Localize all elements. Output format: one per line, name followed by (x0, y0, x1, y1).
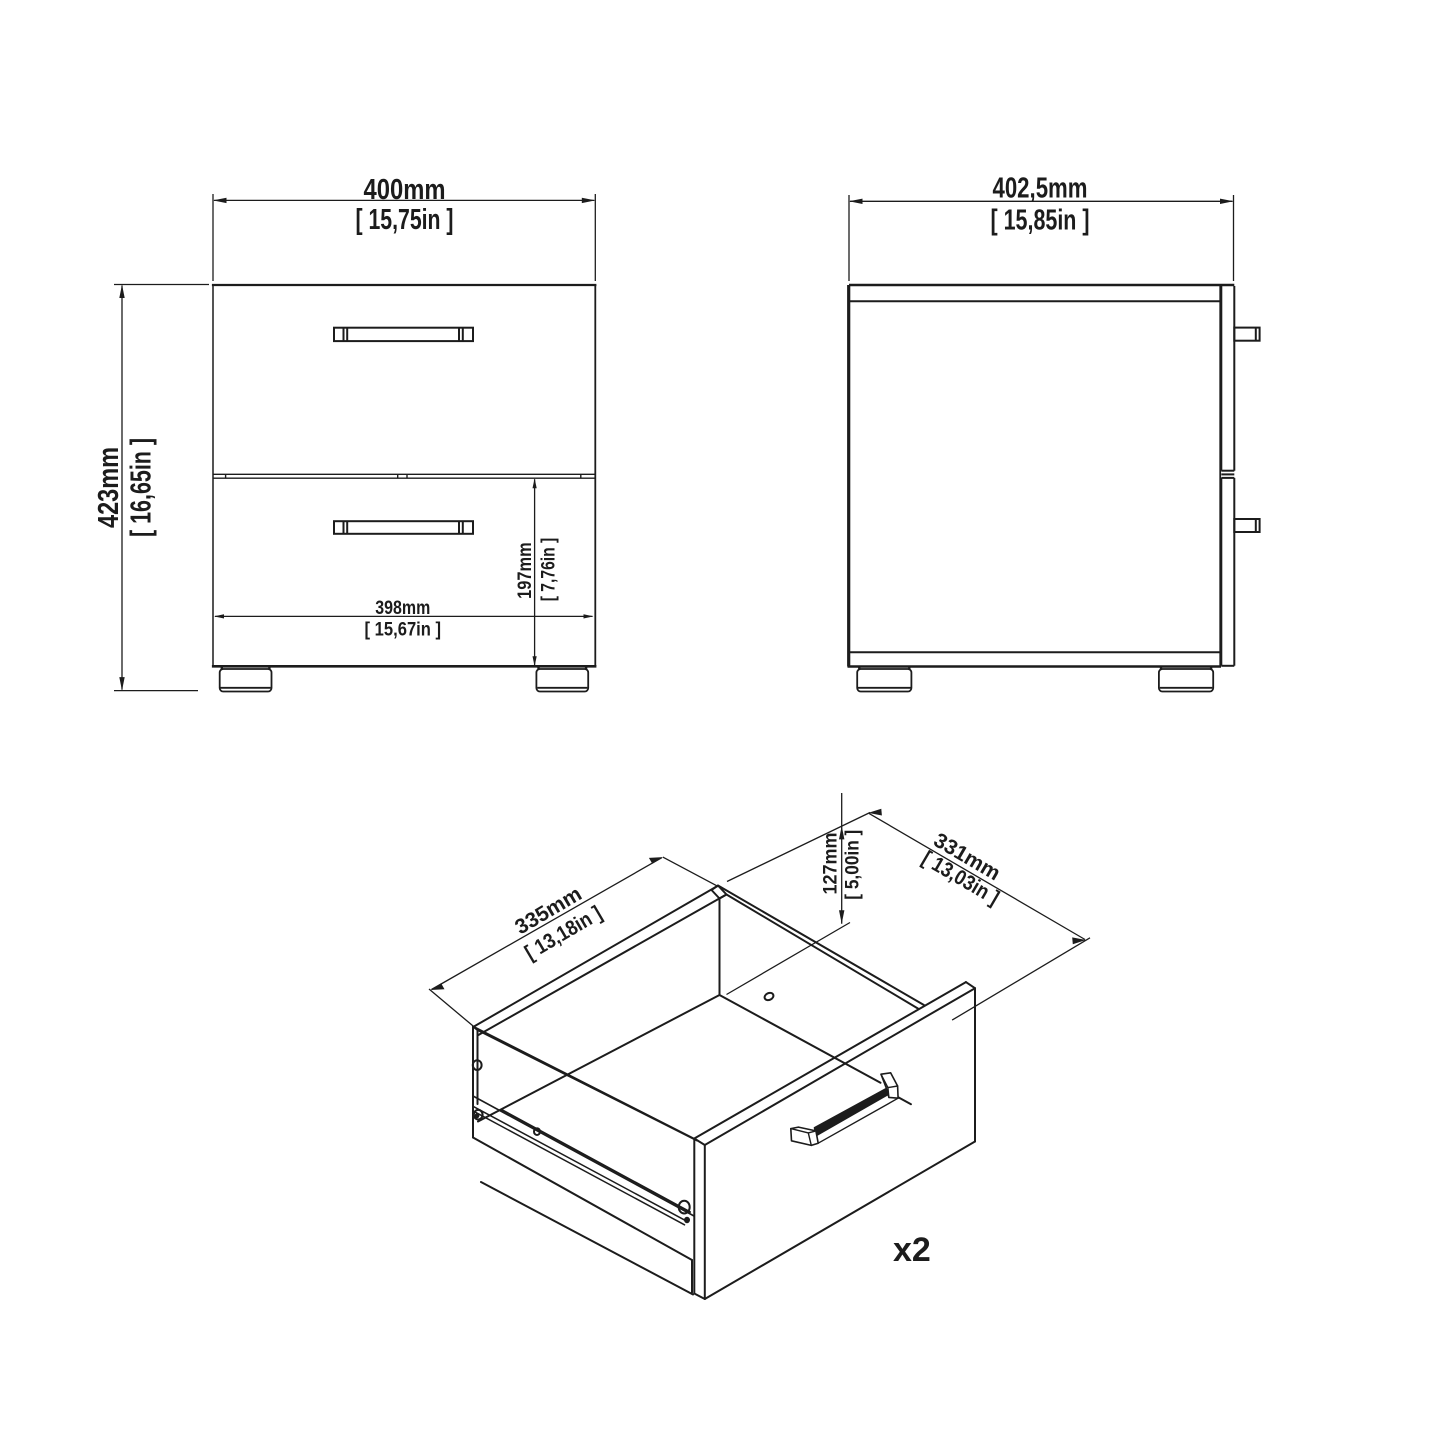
svg-text:402,5mm: 402,5mm (993, 173, 1088, 205)
svg-text:[ 5,00in ]: [ 5,00in ] (843, 830, 864, 900)
svg-text:[ 15,75in ]: [ 15,75in ] (356, 204, 454, 236)
svg-text:423mm: 423mm (93, 447, 125, 528)
svg-text:[ 15,67in ]: [ 15,67in ] (365, 620, 442, 641)
svg-text:197mm: 197mm (515, 542, 536, 599)
svg-text:[ 7,76in ]: [ 7,76in ] (539, 538, 560, 602)
svg-text:400mm: 400mm (364, 174, 446, 206)
svg-text:127mm: 127mm (821, 833, 842, 895)
svg-text:[ 16,65in ]: [ 16,65in ] (126, 438, 158, 537)
svg-text:[ 15,85in ]: [ 15,85in ] (991, 205, 1090, 237)
svg-text:x2: x2 (893, 1231, 931, 1269)
svg-text:398mm: 398mm (375, 598, 430, 619)
